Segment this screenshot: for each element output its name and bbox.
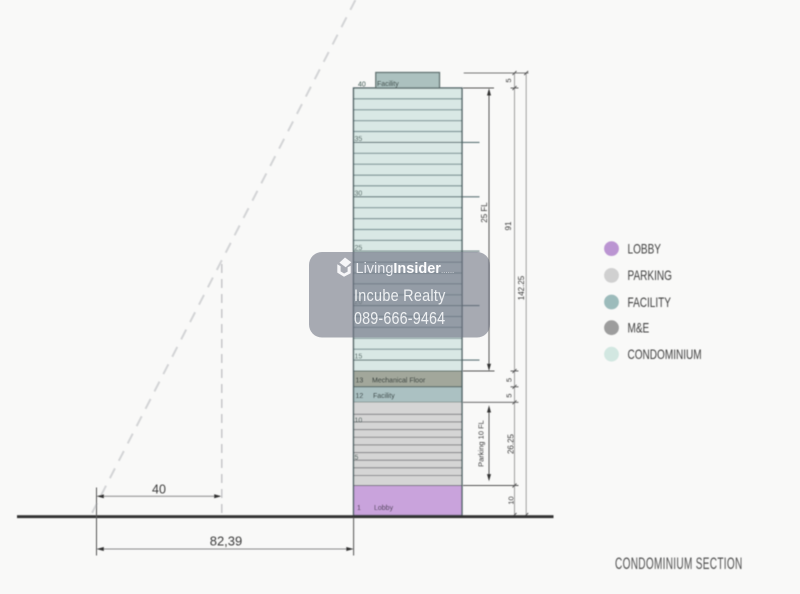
svg-text:10: 10: [355, 417, 363, 424]
svg-text:5: 5: [505, 394, 514, 398]
svg-text:5: 5: [504, 78, 513, 82]
svg-text:Facility: Facility: [377, 81, 399, 88]
svg-text:CONDOMINIUM SECTION: CONDOMINIUM SECTION: [615, 555, 743, 573]
svg-text:10: 10: [507, 496, 516, 504]
svg-text:Facility: Facility: [373, 393, 395, 400]
svg-text:12: 12: [356, 393, 364, 400]
svg-text:Mechanical Floor: Mechanical Floor: [372, 378, 426, 385]
svg-text:PARKING: PARKING: [628, 268, 672, 284]
svg-text:35: 35: [355, 136, 363, 143]
svg-text:142.25: 142.25: [517, 275, 526, 300]
svg-text:26.25: 26.25: [507, 433, 516, 454]
svg-text:91: 91: [504, 221, 513, 230]
svg-text:82,39: 82,39: [210, 534, 243, 549]
svg-text:5: 5: [355, 455, 359, 462]
svg-text:15: 15: [355, 354, 363, 361]
svg-text:1: 1: [357, 505, 361, 512]
svg-text:FACILITY: FACILITY: [628, 294, 672, 310]
svg-text:LOBBY: LOBBY: [628, 241, 662, 257]
svg-text:40: 40: [152, 482, 166, 496]
svg-text:25: 25: [355, 245, 363, 252]
svg-text:25 FL: 25 FL: [480, 202, 489, 223]
svg-text:M&E: M&E: [628, 320, 650, 336]
svg-text:089-666-9464: 089-666-9464: [354, 310, 445, 329]
svg-text:5: 5: [505, 378, 514, 382]
svg-text:13: 13: [356, 378, 364, 385]
svg-text:40: 40: [358, 81, 366, 88]
svg-text:30: 30: [355, 190, 363, 197]
svg-text:CONDOMINIUM: CONDOMINIUM: [628, 347, 702, 363]
svg-text:LivingInsider......: LivingInsider......: [356, 261, 455, 277]
svg-text:Parking 10 FL: Parking 10 FL: [477, 420, 486, 467]
svg-text:Lobby: Lobby: [374, 505, 394, 512]
svg-text:Incube Realty: Incube Realty: [354, 287, 446, 305]
